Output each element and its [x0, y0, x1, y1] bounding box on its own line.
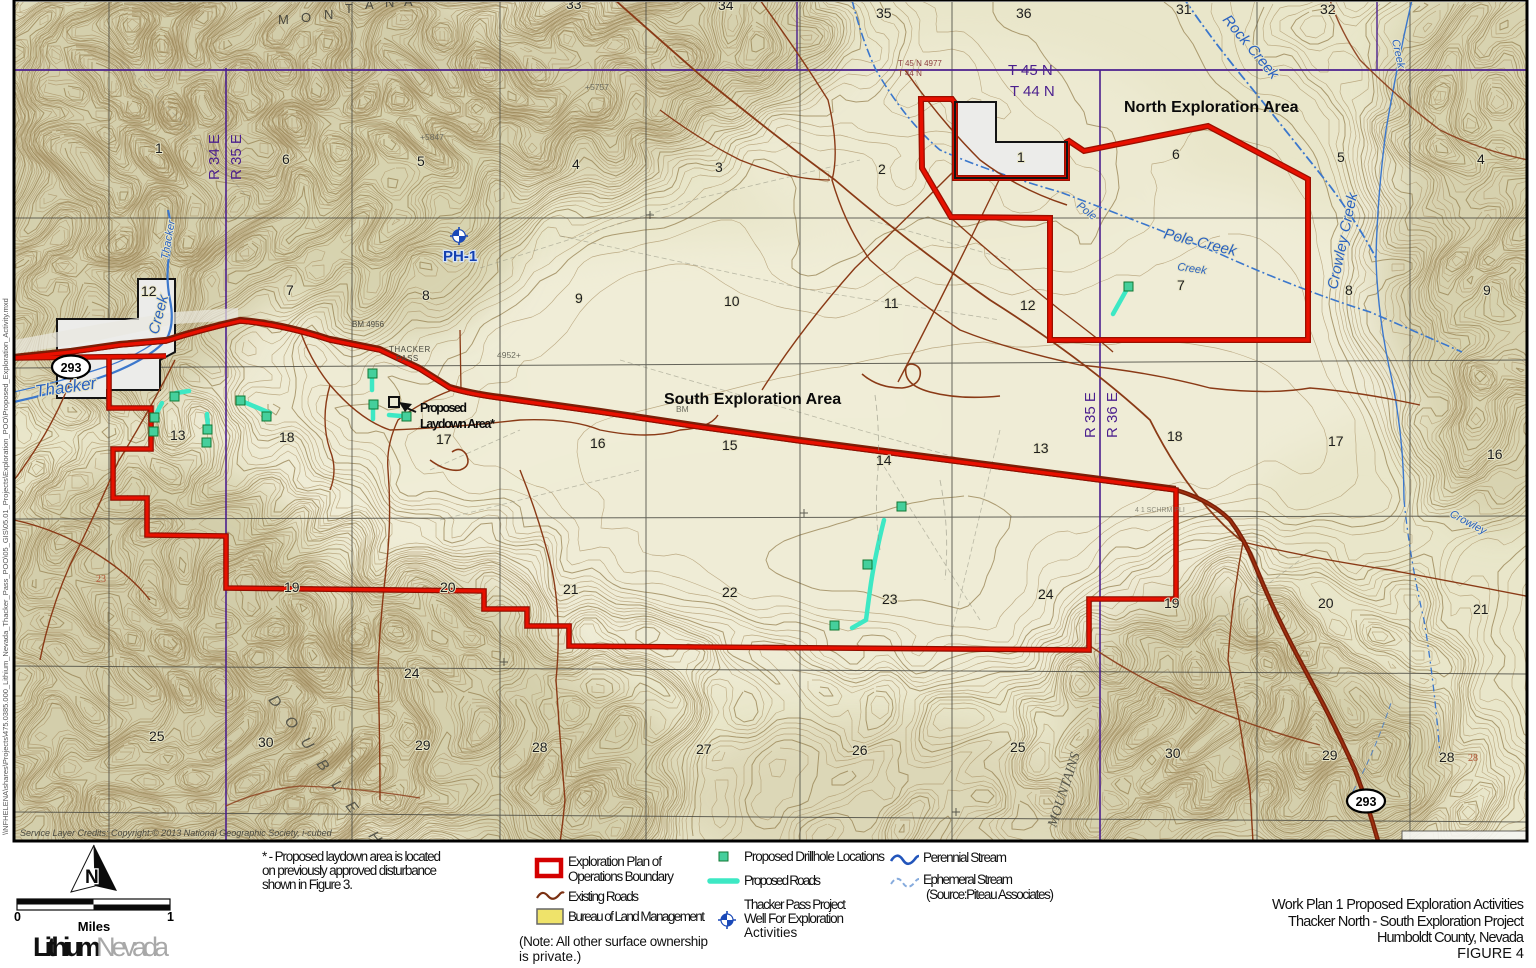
svg-text:28: 28 [1468, 753, 1478, 764]
svg-text:25: 25 [1010, 739, 1026, 755]
svg-text:Operations Boundary: Operations Boundary [568, 869, 674, 884]
svg-text:11: 11 [884, 295, 899, 311]
svg-text:12: 12 [1020, 297, 1036, 313]
svg-text:9: 9 [1483, 282, 1491, 298]
svg-text:BM: BM [676, 404, 689, 414]
svg-text:22: 22 [722, 584, 738, 600]
svg-text:13: 13 [1033, 440, 1049, 456]
svg-text:South Exploration Area: South Exploration Area [664, 391, 841, 408]
svg-text:4: 4 [572, 156, 580, 172]
svg-text:2: 2 [878, 161, 886, 177]
svg-text:4 1 SCHRM PLI: 4 1 SCHRM PLI [1135, 507, 1185, 514]
svg-text:8: 8 [1345, 282, 1353, 298]
svg-text:18: 18 [279, 429, 295, 445]
svg-text:7: 7 [286, 282, 294, 298]
svg-text:T 45 N: T 45 N [1008, 62, 1053, 79]
svg-text:Ephemeral Stream: Ephemeral Stream [923, 872, 1013, 887]
svg-text:21: 21 [563, 581, 579, 597]
svg-text:28: 28 [1439, 749, 1455, 765]
svg-text:N: N [85, 867, 99, 888]
svg-text:T 44 N: T 44 N [1010, 83, 1055, 100]
svg-text:R 34 E: R 34 E [206, 134, 223, 180]
svg-text:0: 0 [14, 910, 21, 924]
svg-text:17: 17 [1328, 433, 1344, 449]
svg-text:23: 23 [96, 574, 106, 585]
svg-text:Exploration Plan of: Exploration Plan of [568, 854, 662, 869]
svg-text:(Source:Piteau Associates): (Source:Piteau Associates) [926, 887, 1054, 902]
svg-text:Proposed: Proposed [420, 401, 467, 415]
svg-text:31: 31 [1176, 1, 1192, 17]
svg-text:15: 15 [722, 437, 738, 453]
svg-text:O: O [301, 10, 311, 25]
svg-text:1: 1 [167, 910, 174, 924]
svg-text:Bureau of Land Management: Bureau of Land Management [568, 909, 705, 924]
svg-text:3: 3 [715, 159, 723, 175]
svg-text:is private.): is private.) [519, 949, 581, 964]
svg-text:23: 23 [882, 591, 898, 607]
svg-text:PH-1: PH-1 [443, 248, 477, 265]
svg-text:24: 24 [1038, 586, 1054, 602]
svg-text:20: 20 [1318, 595, 1334, 611]
svg-text:Humboldt County, Nevada: Humboldt County, Nevada [1377, 930, 1525, 946]
svg-text:28: 28 [532, 739, 548, 755]
svg-text:\\NFHELENA\shares\Projects\475: \\NFHELENA\shares\Projects\475.0385.000_… [1, 298, 10, 835]
svg-text:13: 13 [170, 427, 186, 443]
svg-text:M: M [278, 12, 289, 27]
svg-text:19: 19 [284, 579, 300, 595]
svg-text:21: 21 [1473, 601, 1489, 617]
svg-text:Existing Roads: Existing Roads [568, 889, 639, 904]
svg-text:36: 36 [1016, 5, 1032, 21]
svg-text:293: 293 [61, 361, 82, 375]
svg-text:32: 32 [1320, 1, 1336, 17]
svg-text:FIGURE 4: FIGURE 4 [1457, 946, 1524, 962]
svg-text:20: 20 [440, 579, 456, 595]
svg-text:16: 16 [590, 435, 606, 451]
svg-text:Service Layer Credits: Copyrig: Service Layer Credits: Copyright:© 2013 … [20, 828, 333, 838]
svg-text:PASS: PASS [396, 354, 419, 363]
svg-text:T 45 N 4977: T 45 N 4977 [898, 59, 942, 68]
svg-text:Thacker North - South Explorat: Thacker North - South Exploration Projec… [1288, 914, 1524, 930]
svg-text:25: 25 [149, 728, 165, 744]
svg-text:24: 24 [404, 665, 420, 681]
svg-text:Thacker Pass Project: Thacker Pass Project [744, 897, 846, 912]
svg-text:Laydown Area*: Laydown Area* [420, 417, 495, 431]
svg-text:shown in Figure 3.: shown in Figure 3. [262, 877, 353, 892]
svg-text:35: 35 [876, 5, 892, 21]
svg-text:1: 1 [155, 140, 163, 156]
svg-text:26: 26 [852, 742, 868, 758]
svg-text:7: 7 [1177, 277, 1185, 293]
svg-text:R 35 E: R 35 E [228, 134, 245, 180]
svg-text:5: 5 [1337, 149, 1345, 165]
svg-text:17: 17 [436, 431, 452, 447]
svg-text:+5847: +5847 [420, 132, 444, 142]
svg-text:N: N [324, 7, 333, 22]
svg-text:LithiumNevada: LithiumNevada [33, 932, 170, 962]
svg-text:Work Plan 1 Proposed Explorati: Work Plan 1 Proposed Exploration Activit… [1272, 897, 1524, 913]
svg-text:6: 6 [1172, 146, 1180, 162]
svg-text:29: 29 [415, 737, 431, 753]
svg-text:18: 18 [1167, 428, 1183, 444]
svg-text:5: 5 [417, 153, 425, 169]
svg-text:30: 30 [1165, 745, 1181, 761]
svg-text:BM 4956: BM 4956 [352, 320, 385, 329]
svg-text:T 44 N: T 44 N [898, 69, 922, 78]
svg-text:THACKER: THACKER [389, 345, 431, 354]
svg-text:R 35 E: R 35 E [1082, 392, 1099, 438]
svg-text:4952+: 4952+ [497, 350, 521, 360]
svg-text:27: 27 [696, 741, 712, 757]
svg-text:10: 10 [724, 293, 740, 309]
svg-text:16: 16 [1487, 446, 1503, 462]
svg-text:* - Proposed laydown area is l: * - Proposed laydown area is located [262, 849, 441, 864]
svg-text:Proposed Roads: Proposed Roads [744, 873, 821, 888]
svg-text:Perennial Stream: Perennial Stream [923, 850, 1007, 865]
svg-text:1: 1 [1017, 149, 1025, 165]
svg-text:R 36 E: R 36 E [1104, 392, 1121, 438]
svg-text:8: 8 [422, 287, 430, 303]
svg-text:Well For Exploration: Well For Exploration [744, 911, 844, 926]
svg-text:29: 29 [1322, 747, 1338, 763]
svg-text:(Note: All other surface owner: (Note: All other surface ownership [519, 934, 708, 949]
svg-text:+5757: +5757 [585, 82, 609, 92]
svg-text:Activities: Activities [744, 925, 798, 940]
svg-text:North Exploration Area: North Exploration Area [1124, 99, 1299, 116]
svg-text:19: 19 [1164, 595, 1180, 611]
svg-text:T: T [345, 1, 353, 16]
svg-text:293: 293 [1356, 795, 1377, 809]
svg-text:on previously approved disturb: on previously approved disturbance [262, 863, 437, 878]
svg-text:6: 6 [282, 151, 290, 167]
svg-text:9: 9 [575, 290, 583, 306]
svg-text:4: 4 [1477, 151, 1485, 167]
svg-text:30: 30 [258, 734, 274, 750]
svg-text:Proposed Drillhole Locations: Proposed Drillhole Locations [744, 849, 885, 864]
